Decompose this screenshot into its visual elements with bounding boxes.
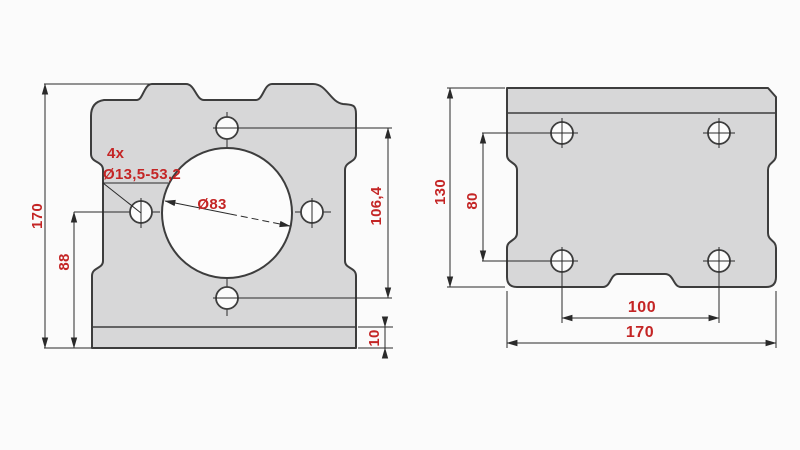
front-view: 170 88 106,4 10 4x Ø13,5-53,2	[29, 84, 393, 358]
dim-label-front-10: 10	[366, 329, 383, 346]
dim-label-top-130: 130	[432, 179, 449, 205]
dim-label-front-88: 88	[56, 253, 73, 270]
dim-label-top-80: 80	[464, 192, 481, 209]
top-view: 130 80 100 170	[432, 88, 776, 348]
dim-front-base-thickness: 10	[358, 317, 393, 358]
dim-label-top-170: 170	[626, 324, 654, 341]
dim-label-front-106-4: 106,4	[368, 186, 385, 225]
dim-top-overall-depth: 130	[432, 88, 505, 287]
hole-callout-spec: Ø13,5-53,2	[103, 166, 181, 183]
dim-label-front-170: 170	[29, 203, 46, 229]
drawing-svg: 170 88 106,4 10 4x Ø13,5-53,2	[0, 0, 800, 450]
hole-callout-count: 4x	[107, 145, 125, 162]
dim-label-top-100: 100	[628, 299, 656, 316]
top-plate-outline	[507, 88, 776, 287]
technical-drawing-canvas: 170 88 106,4 10 4x Ø13,5-53,2	[0, 0, 800, 450]
dim-label-bore-83: Ø83	[197, 196, 226, 213]
dim-front-hole-row-height: 88	[56, 212, 74, 348]
